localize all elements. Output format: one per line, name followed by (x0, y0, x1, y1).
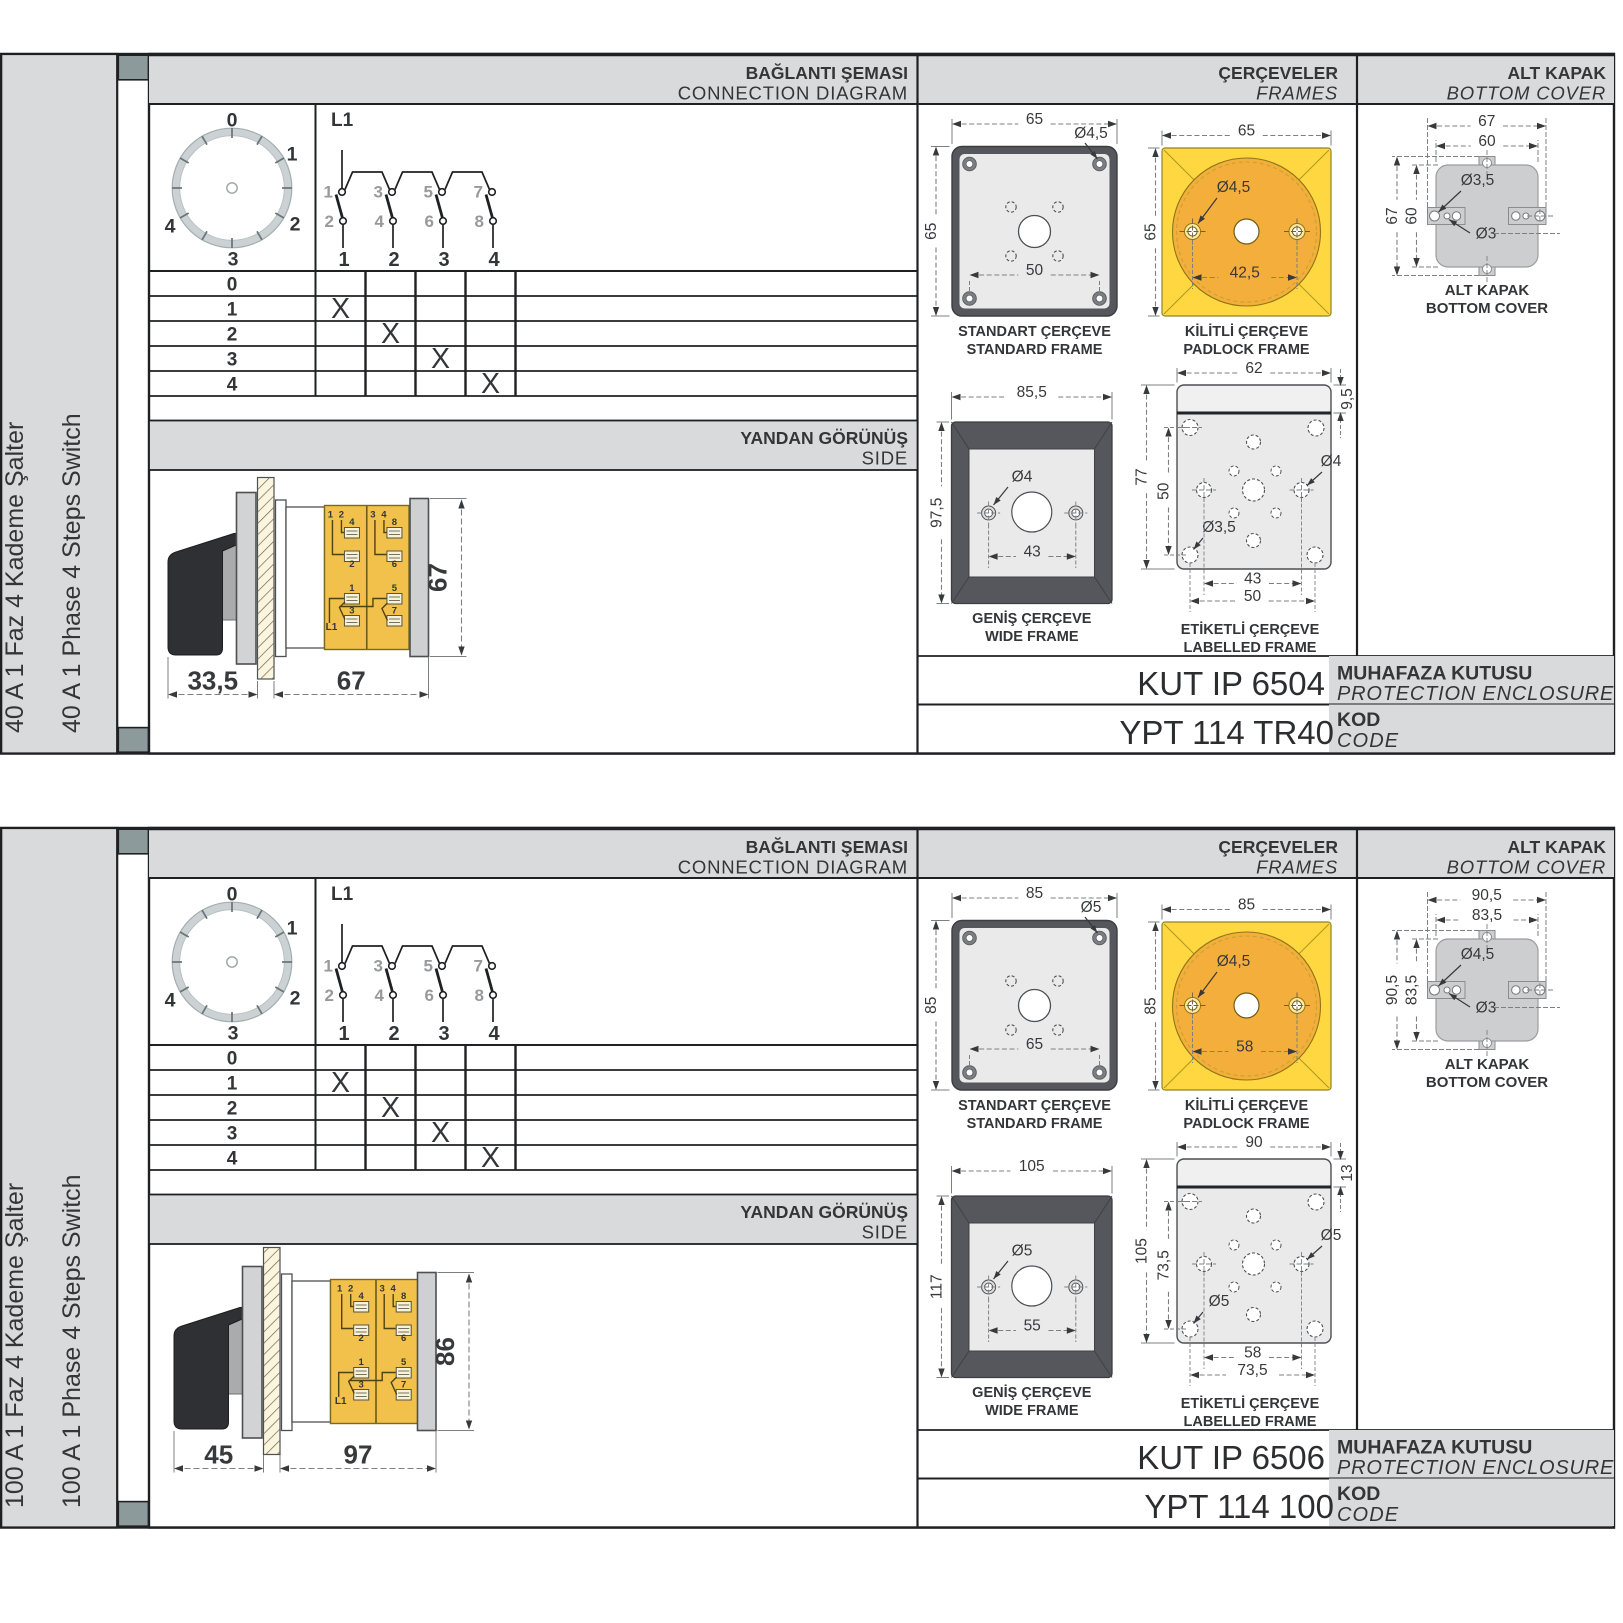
svg-text:KUT IP 6506: KUT IP 6506 (1137, 1439, 1325, 1476)
svg-text:4: 4 (375, 212, 385, 231)
svg-text:YPT 114 100: YPT 114 100 (1144, 1488, 1334, 1525)
svg-text:BAĞLANTI ŞEMASI: BAĞLANTI ŞEMASI (746, 836, 908, 857)
svg-text:1: 1 (337, 1284, 343, 1295)
svg-text:Ø4: Ø4 (1321, 453, 1342, 470)
svg-text:Ø4,5: Ø4,5 (1461, 946, 1495, 963)
svg-text:2: 2 (348, 1284, 353, 1295)
svg-text:1: 1 (338, 1023, 349, 1045)
svg-text:4: 4 (359, 1291, 365, 1302)
svg-text:3: 3 (228, 1023, 239, 1045)
svg-text:3: 3 (227, 350, 238, 371)
svg-text:105: 105 (1134, 1238, 1151, 1264)
svg-text:FRAMES: FRAMES (1256, 857, 1338, 878)
svg-text:90,5: 90,5 (1472, 887, 1502, 904)
svg-text:90,5: 90,5 (1384, 975, 1401, 1005)
svg-text:100 A 1 Faz 4 Kademe Şalter: 100 A 1 Faz 4 Kademe Şalter (1, 1183, 29, 1508)
svg-text:65: 65 (1026, 1036, 1043, 1053)
svg-text:KİLİTLİ ÇERÇEVE: KİLİTLİ ÇERÇEVE (1185, 323, 1309, 340)
svg-text:PADLOCK FRAME: PADLOCK FRAME (1183, 342, 1310, 358)
svg-text:4: 4 (165, 990, 176, 1012)
svg-text:105: 105 (1019, 1158, 1045, 1175)
svg-text:PADLOCK FRAME: PADLOCK FRAME (1183, 1116, 1310, 1132)
svg-text:4: 4 (488, 249, 500, 271)
svg-text:73,5: 73,5 (1156, 1250, 1173, 1280)
svg-text:67: 67 (337, 666, 366, 696)
svg-text:33,5: 33,5 (187, 666, 238, 696)
svg-text:X: X (481, 1142, 500, 1174)
svg-text:1: 1 (328, 510, 334, 521)
svg-text:0: 0 (227, 884, 238, 906)
svg-text:42,5: 42,5 (1230, 265, 1260, 282)
svg-text:1: 1 (287, 144, 298, 166)
svg-text:4: 4 (227, 375, 238, 396)
svg-text:60: 60 (1478, 133, 1496, 150)
svg-text:100 A 1 Phase 4 Steps Switch: 100 A 1 Phase 4 Steps Switch (58, 1174, 86, 1508)
svg-text:2: 2 (349, 559, 354, 570)
svg-text:4: 4 (349, 517, 355, 528)
svg-text:KOD: KOD (1337, 709, 1380, 731)
svg-text:5: 5 (424, 957, 433, 976)
svg-text:MUHAFAZA KUTUSU: MUHAFAZA KUTUSU (1337, 1437, 1532, 1459)
svg-text:83,5: 83,5 (1472, 907, 1502, 924)
svg-text:2: 2 (388, 1023, 399, 1045)
svg-text:55: 55 (1024, 1318, 1041, 1335)
svg-text:1: 1 (227, 1074, 238, 1095)
svg-text:43: 43 (1244, 571, 1261, 588)
svg-text:L1: L1 (331, 110, 354, 131)
svg-text:4: 4 (488, 1023, 500, 1045)
svg-text:3: 3 (438, 249, 449, 271)
svg-text:83,5: 83,5 (1404, 975, 1421, 1005)
svg-text:ALT KAPAK: ALT KAPAK (1507, 837, 1606, 857)
svg-text:85,5: 85,5 (1017, 384, 1047, 401)
svg-text:YPT 114 TR40: YPT 114 TR40 (1119, 714, 1334, 751)
svg-text:6: 6 (425, 212, 434, 231)
svg-text:3: 3 (374, 183, 383, 202)
svg-text:Ø3: Ø3 (1476, 226, 1497, 243)
svg-text:BOTTOM COVER: BOTTOM COVER (1447, 83, 1606, 104)
svg-text:1: 1 (324, 957, 333, 976)
svg-text:SIDE: SIDE (862, 1222, 908, 1243)
svg-text:85: 85 (923, 997, 940, 1014)
svg-text:1: 1 (324, 183, 333, 202)
svg-text:X: X (331, 1067, 350, 1099)
svg-text:4: 4 (381, 510, 387, 521)
svg-text:Ø5: Ø5 (1012, 1243, 1033, 1260)
svg-text:13: 13 (1339, 1164, 1356, 1181)
svg-text:X: X (481, 368, 500, 400)
svg-text:1: 1 (349, 583, 355, 594)
svg-text:YANDAN GÖRÜNÜŞ: YANDAN GÖRÜNÜŞ (740, 428, 908, 448)
svg-text:Ø3,5: Ø3,5 (1461, 172, 1495, 189)
svg-text:2: 2 (325, 212, 334, 231)
svg-text:5: 5 (424, 183, 433, 202)
svg-text:8: 8 (392, 517, 397, 528)
svg-text:Ø3: Ø3 (1476, 1000, 1497, 1017)
svg-text:ÇERÇEVELER: ÇERÇEVELER (1218, 837, 1338, 857)
svg-text:Ø4,5: Ø4,5 (1074, 125, 1108, 142)
svg-text:8: 8 (475, 212, 484, 231)
svg-text:67: 67 (1478, 113, 1495, 130)
svg-text:58: 58 (1236, 1039, 1253, 1056)
svg-text:9,5: 9,5 (1339, 388, 1356, 410)
svg-text:58: 58 (1244, 1345, 1261, 1362)
svg-text:Ø5: Ø5 (1081, 899, 1102, 916)
svg-text:65: 65 (1143, 223, 1160, 240)
svg-text:2: 2 (388, 249, 399, 271)
svg-text:73,5: 73,5 (1237, 1362, 1267, 1379)
svg-text:2: 2 (325, 986, 334, 1005)
svg-text:86: 86 (430, 1337, 460, 1366)
svg-text:4: 4 (165, 216, 176, 238)
svg-text:7: 7 (474, 957, 483, 976)
svg-text:0: 0 (227, 1049, 238, 1070)
svg-text:PROTECTION ENCLOSURE: PROTECTION ENCLOSURE (1337, 1457, 1614, 1479)
svg-text:2: 2 (359, 1333, 364, 1344)
svg-text:1: 1 (287, 918, 298, 940)
svg-text:8: 8 (475, 986, 484, 1005)
svg-text:FRAMES: FRAMES (1256, 83, 1338, 104)
svg-text:BAĞLANTI ŞEMASI: BAĞLANTI ŞEMASI (746, 62, 908, 83)
svg-text:X: X (331, 293, 350, 325)
svg-text:7: 7 (401, 1380, 406, 1391)
svg-text:3: 3 (370, 510, 375, 521)
svg-text:1: 1 (338, 249, 349, 271)
svg-text:CONNECTION DIAGRAM: CONNECTION DIAGRAM (678, 857, 908, 878)
svg-text:KUT IP 6504: KUT IP 6504 (1137, 665, 1325, 702)
svg-text:WIDE FRAME: WIDE FRAME (985, 1403, 1079, 1419)
svg-text:Ø4,5: Ø4,5 (1217, 953, 1251, 970)
svg-text:LABELLED FRAME: LABELLED FRAME (1184, 640, 1317, 656)
svg-text:ALT KAPAK: ALT KAPAK (1445, 1056, 1530, 1073)
svg-text:0: 0 (227, 110, 238, 132)
svg-text:3: 3 (228, 249, 239, 271)
svg-text:STANDART ÇERÇEVE: STANDART ÇERÇEVE (958, 324, 1111, 340)
svg-text:STANDARD FRAME: STANDARD FRAME (967, 1116, 1103, 1132)
svg-text:2: 2 (227, 1099, 238, 1120)
svg-text:77: 77 (1134, 468, 1151, 485)
svg-text:85: 85 (1238, 897, 1255, 914)
svg-text:L1: L1 (335, 1396, 347, 1407)
svg-text:KOD: KOD (1337, 1483, 1380, 1505)
svg-text:1: 1 (359, 1357, 365, 1368)
svg-text:WIDE FRAME: WIDE FRAME (985, 629, 1079, 645)
svg-text:65: 65 (1026, 111, 1043, 128)
svg-text:50: 50 (1244, 588, 1262, 605)
svg-text:ETİKETLİ ÇERÇEVE: ETİKETLİ ÇERÇEVE (1181, 1395, 1320, 1412)
svg-text:L1: L1 (326, 622, 338, 633)
svg-text:8: 8 (401, 1291, 406, 1302)
svg-text:67: 67 (423, 563, 453, 592)
svg-text:5: 5 (392, 583, 398, 594)
svg-text:Ø5: Ø5 (1321, 1227, 1342, 1244)
svg-text:ALT KAPAK: ALT KAPAK (1507, 63, 1606, 83)
svg-text:CODE: CODE (1337, 1504, 1399, 1526)
svg-text:CODE: CODE (1337, 730, 1399, 752)
svg-text:50: 50 (1026, 262, 1044, 279)
svg-text:YANDAN GÖRÜNÜŞ: YANDAN GÖRÜNÜŞ (740, 1202, 908, 1222)
svg-text:KİLİTLİ ÇERÇEVE: KİLİTLİ ÇERÇEVE (1185, 1097, 1309, 1114)
svg-text:GENİŞ ÇERÇEVE: GENİŞ ÇERÇEVE (972, 1384, 1092, 1401)
svg-text:ALT KAPAK: ALT KAPAK (1445, 282, 1530, 299)
svg-text:2: 2 (290, 988, 301, 1010)
svg-text:4: 4 (227, 1149, 238, 1170)
svg-text:4: 4 (375, 986, 385, 1005)
svg-text:3: 3 (438, 1023, 449, 1045)
svg-text:65: 65 (1238, 123, 1255, 140)
svg-text:BOTTOM COVER: BOTTOM COVER (1426, 1074, 1548, 1091)
svg-text:2: 2 (339, 510, 344, 521)
svg-text:SIDE: SIDE (862, 448, 908, 469)
svg-text:Ø4: Ø4 (1012, 469, 1033, 486)
svg-text:STANDARD FRAME: STANDARD FRAME (967, 342, 1103, 358)
svg-text:ÇERÇEVELER: ÇERÇEVELER (1218, 63, 1338, 83)
svg-text:1: 1 (227, 300, 238, 321)
svg-text:BOTTOM COVER: BOTTOM COVER (1447, 857, 1606, 878)
svg-text:3: 3 (380, 1284, 385, 1295)
svg-text:7: 7 (474, 183, 483, 202)
svg-text:90: 90 (1245, 1134, 1263, 1151)
svg-text:85: 85 (1143, 997, 1160, 1014)
svg-text:6: 6 (392, 559, 397, 570)
svg-text:Ø3,5: Ø3,5 (1202, 519, 1236, 536)
svg-text:Ø5: Ø5 (1209, 1293, 1230, 1310)
svg-text:Ø4,5: Ø4,5 (1217, 179, 1251, 196)
svg-text:2: 2 (290, 214, 301, 236)
svg-text:40 A 1 Phase 4 Steps Switch: 40 A 1 Phase 4 Steps Switch (58, 413, 86, 733)
svg-text:65: 65 (923, 223, 940, 240)
svg-text:0: 0 (227, 275, 238, 296)
svg-text:6: 6 (425, 986, 434, 1005)
svg-text:60: 60 (1404, 207, 1421, 225)
svg-text:43: 43 (1024, 544, 1041, 561)
svg-text:X: X (381, 1092, 400, 1124)
svg-text:3: 3 (374, 957, 383, 976)
svg-text:LABELLED FRAME: LABELLED FRAME (1184, 1414, 1317, 1430)
svg-text:6: 6 (401, 1333, 406, 1344)
svg-text:117: 117 (929, 1274, 946, 1299)
svg-text:4: 4 (391, 1284, 397, 1295)
svg-text:67: 67 (1384, 207, 1401, 224)
svg-text:X: X (381, 318, 400, 350)
svg-text:97: 97 (344, 1440, 373, 1470)
svg-text:CONNECTION DIAGRAM: CONNECTION DIAGRAM (678, 83, 908, 104)
svg-text:45: 45 (204, 1440, 233, 1470)
svg-text:L1: L1 (331, 884, 354, 905)
svg-text:X: X (431, 343, 450, 375)
svg-text:BOTTOM COVER: BOTTOM COVER (1426, 300, 1548, 317)
svg-text:7: 7 (392, 606, 397, 617)
svg-text:3: 3 (227, 1124, 238, 1145)
svg-text:PROTECTION ENCLOSURE: PROTECTION ENCLOSURE (1337, 683, 1614, 705)
svg-text:97,5: 97,5 (929, 498, 946, 528)
svg-text:85: 85 (1026, 885, 1043, 902)
svg-text:62: 62 (1245, 360, 1262, 377)
svg-text:ETİKETLİ ÇERÇEVE: ETİKETLİ ÇERÇEVE (1181, 621, 1320, 638)
svg-text:GENİŞ ÇERÇEVE: GENİŞ ÇERÇEVE (972, 610, 1092, 627)
svg-text:40 A 1 Faz 4 Kademe Şalter: 40 A 1 Faz 4 Kademe Şalter (1, 422, 29, 733)
svg-text:STANDART ÇERÇEVE: STANDART ÇERÇEVE (958, 1098, 1111, 1114)
svg-text:50: 50 (1156, 482, 1173, 500)
svg-text:X: X (431, 1117, 450, 1149)
svg-text:5: 5 (401, 1357, 407, 1368)
svg-text:2: 2 (227, 325, 238, 346)
svg-text:MUHAFAZA KUTUSU: MUHAFAZA KUTUSU (1337, 663, 1532, 685)
